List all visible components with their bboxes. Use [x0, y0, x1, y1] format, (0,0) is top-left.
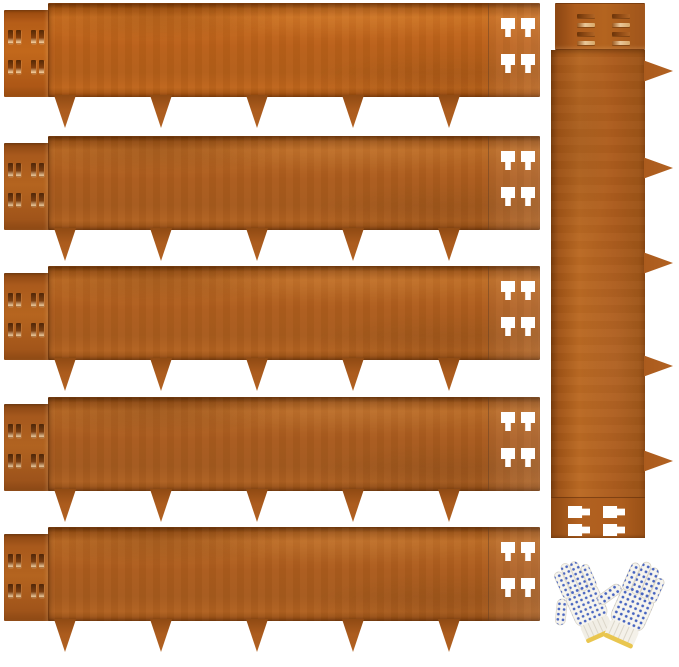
connector-slot [31, 293, 36, 307]
keyhole-cutout [521, 18, 535, 37]
strip-steel-panel [48, 527, 540, 621]
connector-tab [4, 534, 49, 621]
connector-slot [577, 41, 595, 45]
connector-slot [39, 193, 44, 207]
keyhole-cutout [501, 578, 515, 597]
connector-slot [16, 584, 21, 598]
keyhole-cutout [603, 506, 625, 518]
keyhole-cutout [568, 524, 590, 536]
ground-stake [149, 95, 173, 128]
connector-slot [16, 163, 21, 177]
ground-stake [53, 228, 77, 261]
strip-steel-panel [551, 50, 645, 497]
connector-slot [8, 193, 13, 207]
ground-stake [245, 228, 269, 261]
connector-slot [8, 554, 13, 568]
keyhole-panel [488, 527, 540, 621]
connector-slot [16, 554, 21, 568]
keyhole-panel [551, 497, 645, 538]
keyhole-cutout [501, 448, 515, 467]
strip-steel-panel [48, 397, 540, 491]
connector-slot [39, 454, 44, 468]
keyhole-cutout [603, 524, 625, 536]
ground-stake [149, 358, 173, 391]
connector-slot [16, 193, 21, 207]
connector-slot [39, 424, 44, 438]
connector-slot [16, 454, 21, 468]
connector-tab [4, 10, 49, 97]
connector-slot [39, 293, 44, 307]
connector-slot [39, 60, 44, 74]
keyhole-cutout [501, 412, 515, 431]
ground-stake [437, 358, 461, 391]
keyhole-cutout [521, 412, 535, 431]
connector-slot [8, 163, 13, 177]
connector-tab-top [555, 3, 645, 50]
keyhole-panel [488, 266, 540, 360]
keyhole-cutout [501, 18, 515, 37]
ground-stake [245, 95, 269, 128]
connector-slot [8, 60, 13, 74]
ground-stake [149, 619, 173, 652]
connector-slot [39, 163, 44, 177]
edging-strip [4, 3, 540, 97]
connector-slot [31, 163, 36, 177]
connector-slot [612, 23, 630, 27]
ground-stake [245, 489, 269, 522]
keyhole-cutout [501, 54, 515, 73]
ground-stake [437, 489, 461, 522]
connector-slot [612, 41, 630, 45]
ground-stake [53, 619, 77, 652]
connector-slot [16, 60, 21, 74]
connector-slot [39, 323, 44, 337]
connector-slot [577, 32, 595, 36]
ground-stake [149, 489, 173, 522]
keyhole-panel [488, 3, 540, 97]
connector-slot [8, 424, 13, 438]
connector-slot [16, 323, 21, 337]
ground-stake [341, 358, 365, 391]
connector-slot [577, 23, 595, 27]
keyhole-cutout [521, 578, 535, 597]
work-gloves-image [545, 548, 679, 667]
ground-stake [341, 95, 365, 128]
connector-slot [31, 30, 36, 44]
edging-strip [4, 136, 540, 230]
ground-stake [437, 228, 461, 261]
keyhole-cutout [501, 187, 515, 206]
ground-stake [341, 619, 365, 652]
connector-slot [31, 424, 36, 438]
connector-slot [31, 454, 36, 468]
keyhole-cutout [521, 54, 535, 73]
connector-slot [31, 584, 36, 598]
keyhole-cutout [501, 281, 515, 300]
keyhole-cutout [521, 187, 535, 206]
connector-tab [4, 404, 49, 491]
connector-tab [4, 143, 49, 230]
connector-slot [31, 554, 36, 568]
connector-slot [16, 30, 21, 44]
connector-slot [8, 584, 13, 598]
connector-slot [39, 30, 44, 44]
connector-slot [577, 14, 595, 18]
ground-stake [53, 95, 77, 128]
keyhole-cutout [521, 448, 535, 467]
connector-tab [4, 273, 49, 360]
edging-strip [4, 266, 540, 360]
keyhole-cutout [521, 151, 535, 170]
connector-slot [31, 193, 36, 207]
ground-stake [245, 358, 269, 391]
connector-slot [31, 323, 36, 337]
keyhole-cutout [521, 542, 535, 561]
ground-stake [149, 228, 173, 261]
ground-stake [437, 95, 461, 128]
connector-slot [39, 554, 44, 568]
connector-slot [39, 584, 44, 598]
strip-steel-panel [48, 3, 540, 97]
strip-steel-panel [48, 136, 540, 230]
connector-slot [16, 424, 21, 438]
connector-slot [612, 14, 630, 18]
ground-stake [341, 489, 365, 522]
keyhole-panel [488, 136, 540, 230]
ground-stake [245, 619, 269, 652]
keyhole-cutout [521, 317, 535, 336]
edging-strip [4, 527, 540, 621]
strip-steel-panel [48, 266, 540, 360]
connector-slot [8, 323, 13, 337]
keyhole-cutout [568, 506, 590, 518]
connector-slot [8, 293, 13, 307]
keyhole-cutout [521, 281, 535, 300]
ground-stake [437, 619, 461, 652]
keyhole-cutout [501, 317, 515, 336]
keyhole-cutout [501, 542, 515, 561]
connector-slot [16, 293, 21, 307]
edging-strip [4, 397, 540, 491]
product-photo [0, 0, 679, 667]
ground-stake [53, 489, 77, 522]
edging-strip-vertical [551, 3, 645, 538]
keyhole-panel [488, 397, 540, 491]
connector-slot [8, 30, 13, 44]
ground-stake [341, 228, 365, 261]
connector-slot [8, 454, 13, 468]
connector-slot [612, 32, 630, 36]
connector-slot [31, 60, 36, 74]
keyhole-cutout [501, 151, 515, 170]
ground-stake [53, 358, 77, 391]
